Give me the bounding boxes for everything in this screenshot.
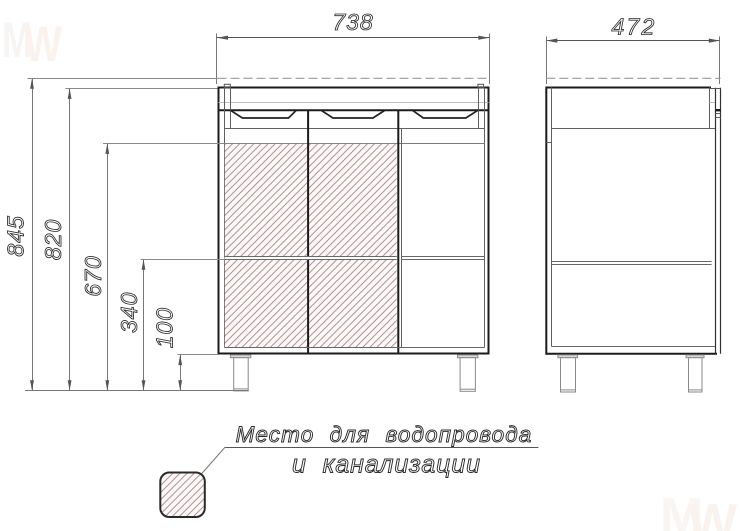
svg-text:820: 820 (40, 219, 66, 260)
svg-text:472: 472 (612, 14, 657, 40)
svg-text:100: 100 (152, 307, 178, 348)
svg-text:670: 670 (80, 255, 106, 296)
svg-text:340: 340 (116, 292, 142, 333)
svg-text:и канализации: и канализации (292, 451, 481, 479)
svg-text:845: 845 (2, 215, 28, 256)
svg-text:W: W (688, 494, 738, 531)
svg-text:W: W (24, 16, 63, 72)
svg-text:738: 738 (332, 9, 373, 35)
svg-text:Место для водопровода: Место для водопровода (236, 422, 533, 447)
